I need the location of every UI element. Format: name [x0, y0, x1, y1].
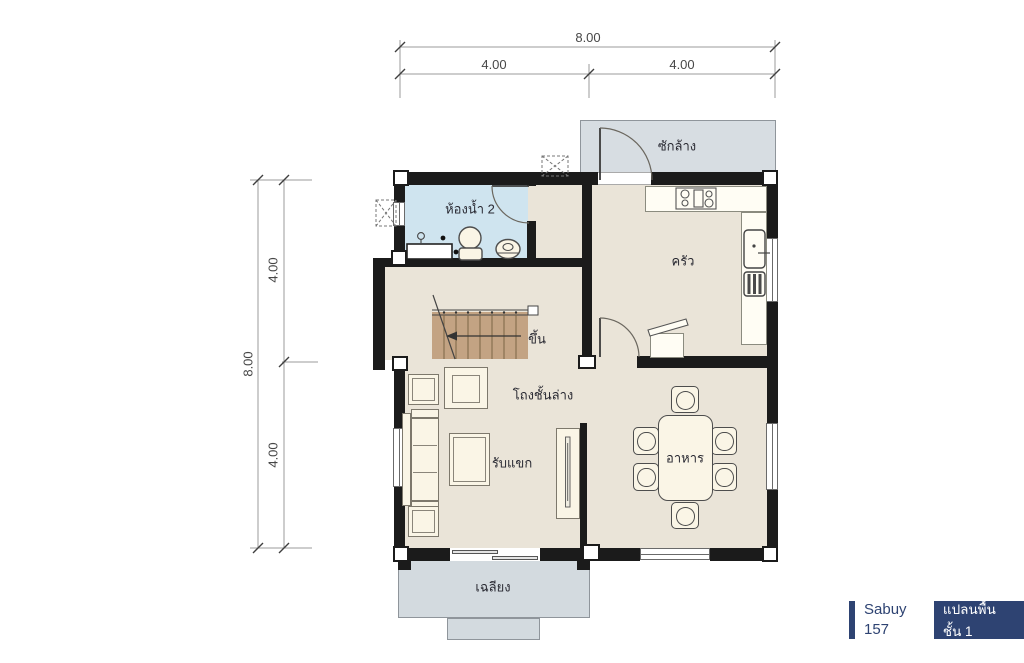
sliding-door-panel-2	[492, 556, 538, 560]
post-left-mid-lower	[392, 356, 408, 371]
wall-top-right	[651, 172, 778, 185]
post-bottom-left	[393, 546, 409, 562]
label-porch: เฉลียง	[475, 577, 510, 598]
wall-kitchen-vertical	[582, 178, 592, 356]
label-laundry: ซักล้าง	[658, 136, 696, 157]
brand-name: Sabuy 157	[855, 597, 934, 643]
post-bottom-center	[582, 544, 600, 561]
sofa-cushion-line-1	[413, 445, 437, 446]
wall-tv-partition	[580, 423, 587, 548]
sofa-back	[402, 413, 411, 506]
window-dining-right	[766, 423, 778, 490]
dining-chair-bottom	[671, 502, 699, 529]
porch-stub-left	[398, 561, 411, 570]
dim-left-top-segment: 4.00	[266, 257, 281, 282]
dim-top-left-segment: 4.00	[481, 57, 506, 72]
label-hall: โถงชั้นล่าง	[513, 385, 574, 406]
wall-top-left	[395, 172, 598, 185]
dining-chair-right-2	[711, 463, 737, 491]
window-dining-bottom	[640, 548, 710, 560]
post-bottom-right	[762, 546, 778, 562]
kitchen-counter-top	[645, 186, 767, 212]
wall-bathroom-right-top	[527, 178, 536, 186]
label-kitchen: ครัว	[672, 251, 695, 272]
dim-top-total: 8.00	[575, 30, 600, 45]
coffee-table-inner	[453, 437, 486, 482]
stair-hall-floor-patch	[385, 267, 401, 360]
sofa-seat	[411, 418, 439, 501]
porch-step	[447, 618, 540, 640]
sliding-door-panel-1	[452, 550, 498, 554]
dim-left-total: 8.00	[241, 351, 256, 376]
kitchen-counter-right	[741, 212, 767, 345]
plan-title: แปลนพื้นชั้น 1	[943, 598, 1013, 642]
post-center	[578, 355, 596, 369]
window-kitchen-right	[766, 238, 778, 302]
plan-badge: Sabuy 157 แปลนพื้นชั้น 1	[849, 601, 1024, 639]
kitchen-cabinet	[650, 333, 684, 358]
label-living: รับแขก	[492, 453, 532, 474]
laundry-door-opening	[598, 172, 651, 185]
wall-left-stair	[373, 258, 385, 370]
sofa-cushion-line-2	[413, 472, 437, 473]
sofa-arm-top	[411, 409, 439, 418]
dining-chair-left-2	[633, 463, 659, 491]
dim-top-right-segment: 4.00	[669, 57, 694, 72]
bathroom-floor	[404, 180, 528, 260]
post-left-mid-upper	[391, 250, 407, 266]
armchair-seat	[452, 375, 480, 403]
bathroom-vent-opening	[393, 202, 405, 226]
post-top-left	[393, 170, 409, 186]
wall-bathroom-right-low	[527, 221, 536, 258]
dining-chair-right-1	[711, 427, 737, 455]
tv-console	[556, 428, 580, 519]
label-bathroom: ห้องน้ำ 2	[445, 199, 495, 220]
label-stairs-up: ขึ้น	[528, 329, 546, 350]
wall-right-c	[767, 490, 778, 548]
side-table-top-inner	[412, 378, 435, 401]
label-dining: อาหาร	[666, 448, 704, 469]
dim-left-bottom-segment: 4.00	[266, 442, 281, 467]
post-top-right	[762, 170, 778, 186]
dining-chair-left-1	[633, 427, 659, 455]
dining-chair-top	[671, 386, 699, 413]
side-table-bottom-inner	[412, 510, 435, 533]
stairs-floor	[432, 312, 528, 359]
porch-stub-right	[577, 561, 590, 570]
floor-plan-canvas: ซักล้าง ห้องน้ำ 2 ครัว ขึ้น โถงชั้นล่าง …	[0, 0, 1024, 663]
